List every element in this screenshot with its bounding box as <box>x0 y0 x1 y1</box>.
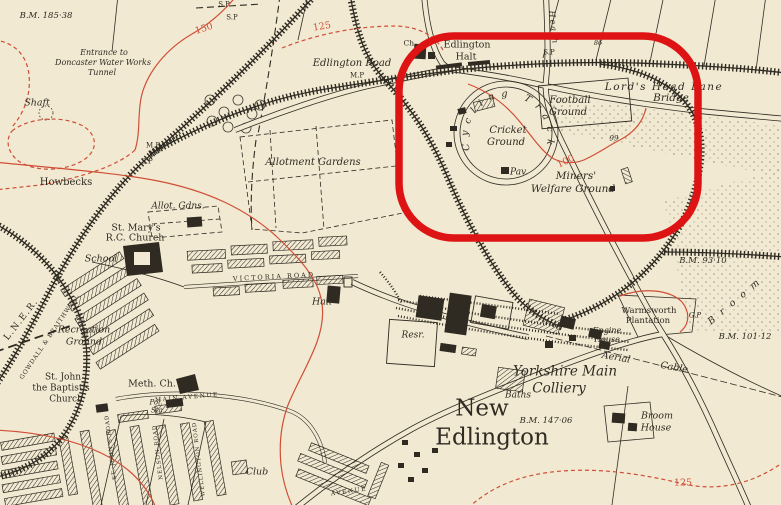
terraces-bottom-middle <box>292 433 389 505</box>
terraces-south-west <box>0 403 226 505</box>
shaft-ring <box>39 106 53 120</box>
contour-lines <box>0 0 781 505</box>
aerial-cable-line <box>546 336 781 398</box>
allotment-gardens-plot <box>148 120 403 238</box>
map-viewport[interactable]: Cycling Track B.M. 185·38Entrance toDonc… <box>0 0 781 505</box>
terraces-victoria-road <box>187 236 350 297</box>
railway-colliery-curve <box>350 0 562 327</box>
map-base-drawing: Cycling Track <box>0 0 781 505</box>
svg-text:Cycling Track: Cycling Track <box>459 88 555 151</box>
map-label-cycling-track: Cycling Track <box>459 88 555 151</box>
rough-pasture <box>548 96 781 332</box>
